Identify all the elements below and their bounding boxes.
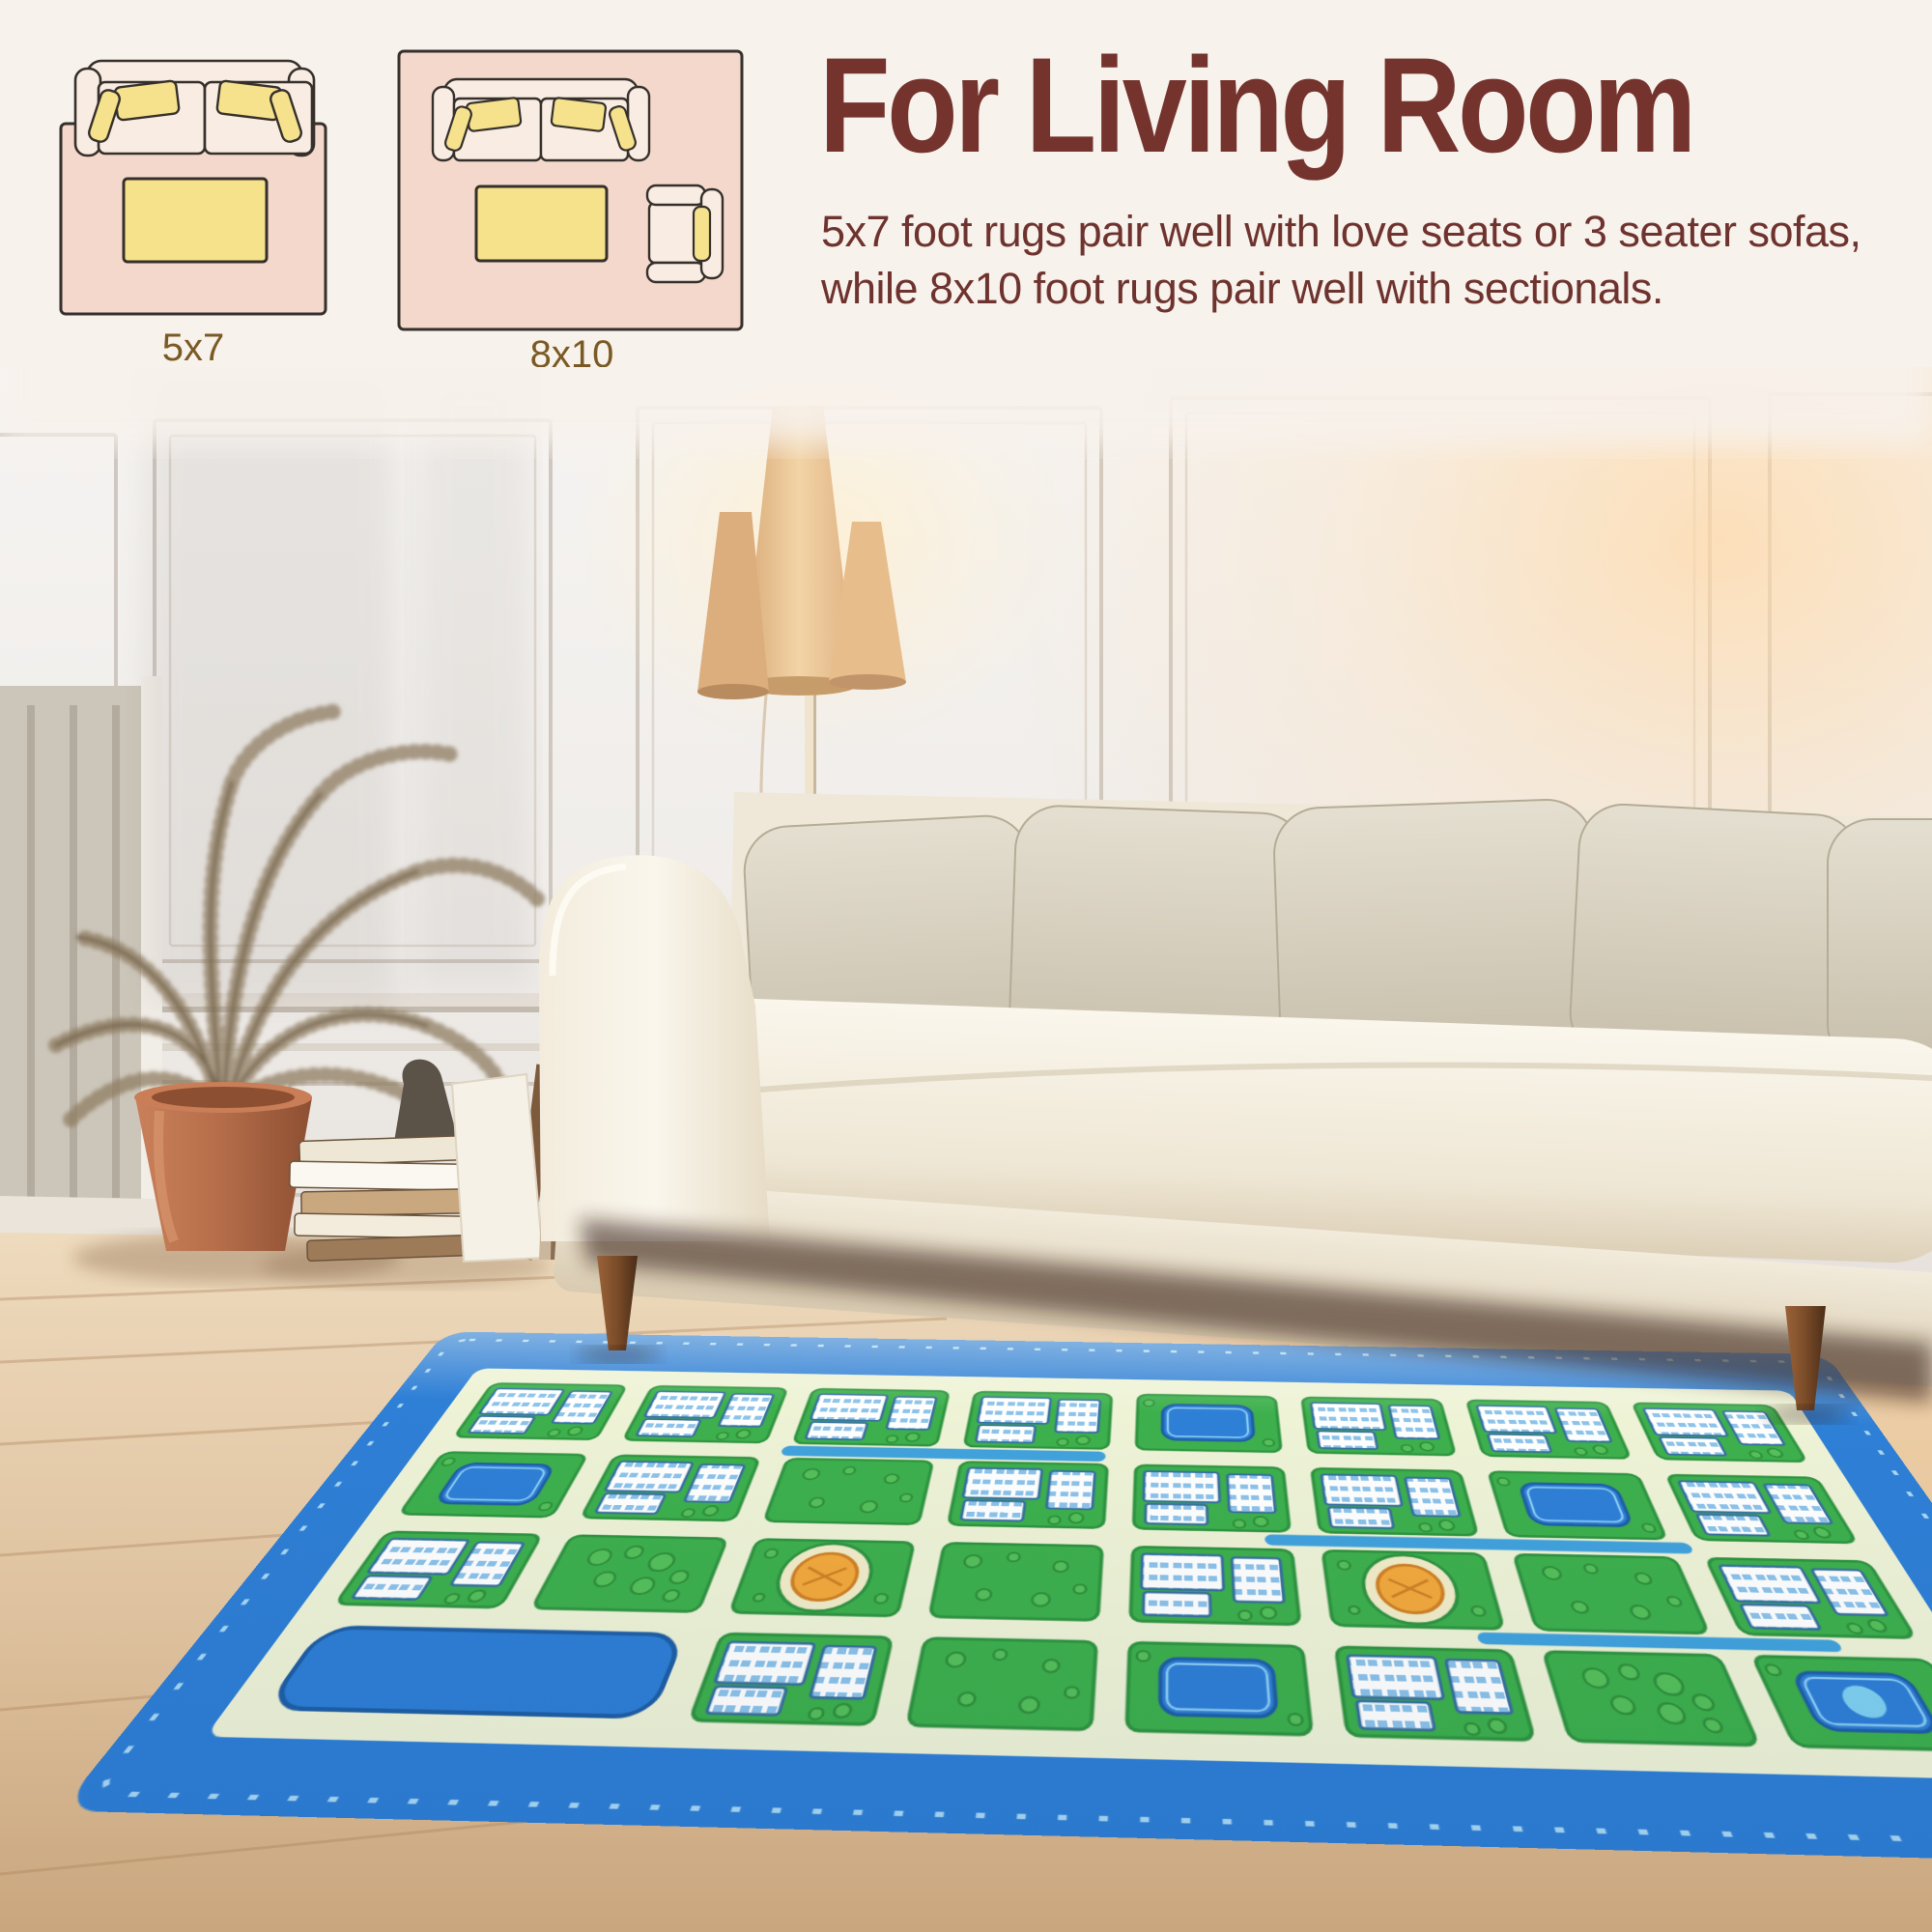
door-panel: [0, 676, 162, 1217]
page-description: 5x7 foot rugs pair well with love seats …: [821, 203, 1932, 317]
sofa: [539, 792, 1932, 1388]
coffee-table-icon: [476, 186, 607, 261]
rug-size-diagram-5x7: 5x7: [27, 24, 346, 367]
rug-size-diagram-8x10: 8x10: [386, 17, 758, 377]
armchair-top-view-icon: [647, 185, 723, 282]
size-label-5x7: 5x7: [162, 327, 225, 367]
coffee-table-icon: [124, 179, 267, 262]
product-infographic: 5x7: [0, 0, 1932, 1932]
info-band: 5x7: [0, 0, 1932, 367]
page-title: For Living Room: [819, 27, 1775, 184]
